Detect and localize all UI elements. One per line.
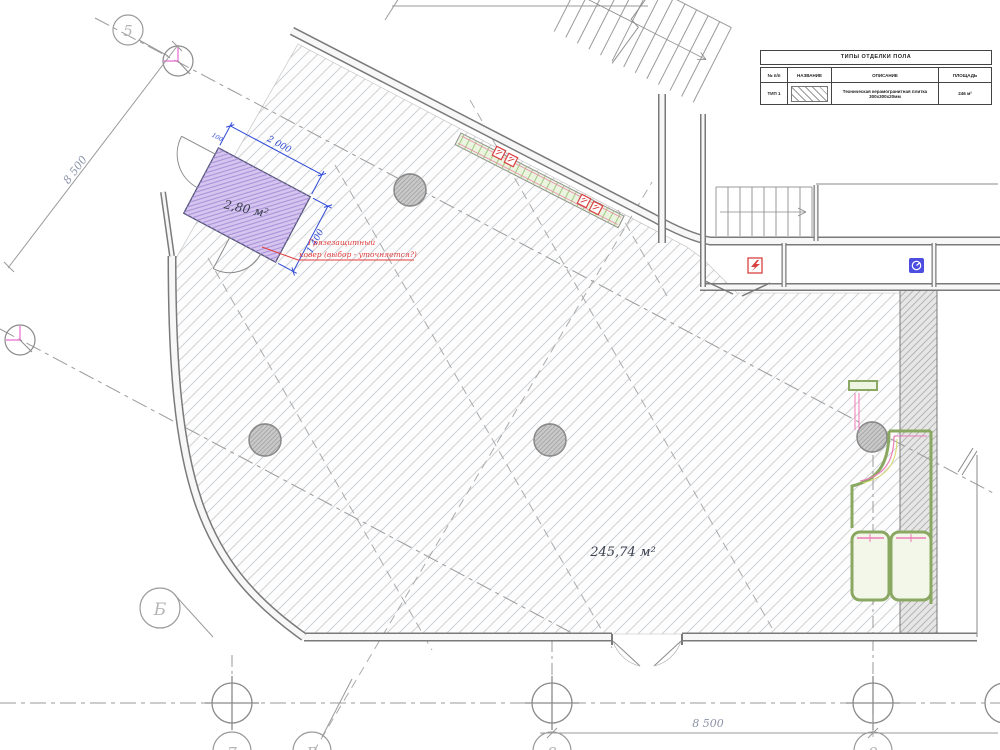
finish-table-row: ТИП 1 Техническая керамогранитная плитка… bbox=[761, 83, 991, 104]
survey-point-2 bbox=[5, 325, 35, 355]
finish-row-area: 246 м² bbox=[939, 83, 991, 104]
dimension-bottom: 8 500 bbox=[540, 714, 998, 738]
finish-col-desc: ОПИСАНИЕ bbox=[832, 68, 939, 82]
note-line1: Грязезащитный bbox=[307, 238, 375, 247]
plan-canvas: 2 000 1 400 100 2,80 м² Грязезащитный ко… bbox=[0, 0, 1000, 750]
axis-bubble-7: 7 bbox=[227, 744, 237, 750]
axis-bubble-5: 5 bbox=[123, 22, 133, 40]
floor-plan-drawing: 2 000 1 400 100 2,80 м² Грязезащитный ко… bbox=[0, 0, 1000, 750]
dim-8500-bottom: 8 500 bbox=[692, 717, 724, 730]
stair-flight-lower bbox=[716, 187, 812, 236]
axis-bubble-9: 9 bbox=[868, 744, 878, 750]
axis-bubble-v: В bbox=[305, 744, 317, 750]
dim-8500-left: 8 500 bbox=[61, 153, 90, 186]
axis-bubble-8: 8 bbox=[547, 744, 557, 750]
main-hall-floor bbox=[174, 44, 900, 634]
finish-row-desc: Техническая керамогранитная плитка 300х3… bbox=[832, 83, 939, 104]
stair-direction-arrow bbox=[572, 0, 708, 63]
floor-finish-table: ТИПЫ ОТДЕЛКИ ПОЛА № п/п НАЗВАНИЕ ОПИСАНИ… bbox=[760, 50, 992, 105]
axis-bubble-b: Б bbox=[153, 600, 167, 620]
finish-col-num: № п/п bbox=[761, 68, 788, 82]
stair-direction-arrow-2 bbox=[720, 208, 806, 216]
note-line2: ковер (выбор - уточняется?) bbox=[299, 250, 417, 259]
entrance-double-door bbox=[612, 634, 682, 666]
hatch-swatch bbox=[791, 86, 828, 102]
water-meter-symbol bbox=[909, 258, 924, 273]
survey-point-1 bbox=[163, 46, 193, 76]
stair-flight-upper bbox=[553, 0, 734, 104]
dimension-top-left: 8 500 bbox=[4, 41, 182, 272]
finish-row-num: ТИП 1 bbox=[761, 83, 788, 104]
finish-table-title: ТИПЫ ОТДЕЛКИ ПОЛА bbox=[760, 50, 992, 65]
finish-col-area: ПЛОЩАДЬ bbox=[939, 68, 991, 82]
finish-col-name: НАЗВАНИЕ bbox=[788, 68, 832, 82]
electrical-room-symbol bbox=[748, 258, 762, 273]
main-area-label: 245,74 м² bbox=[589, 545, 656, 560]
